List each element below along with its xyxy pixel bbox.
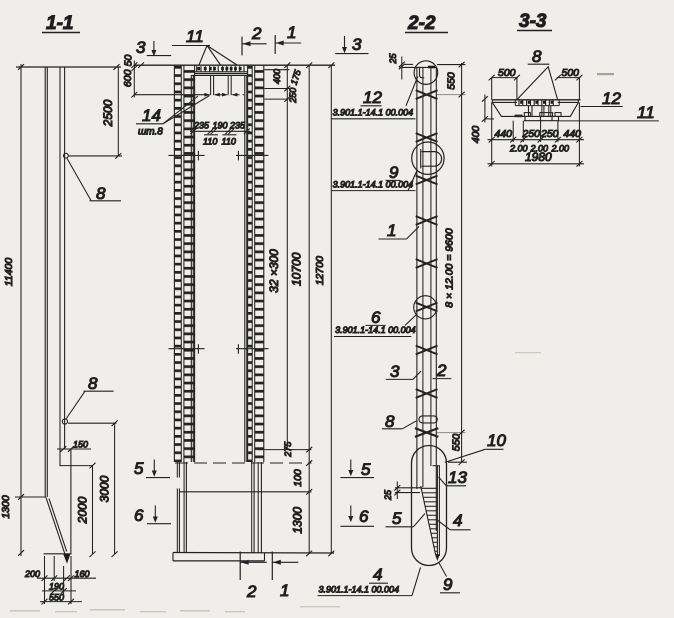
svg-text:6: 6 [134,506,144,525]
svg-text:1: 1 [280,581,289,600]
svg-text:110: 110 [222,137,236,147]
svg-text:3: 3 [390,362,400,381]
svg-text:32 ×300: 32 ×300 [267,249,281,293]
svg-text:190: 190 [49,582,64,592]
svg-text:250: 250 [540,128,559,140]
svg-text:2: 2 [251,24,262,43]
svg-text:160: 160 [75,569,90,579]
svg-text:400: 400 [470,126,482,144]
svg-text:8 × 12.00 = 9600: 8 × 12.00 = 9600 [444,228,456,308]
svg-text:12: 12 [363,88,382,107]
svg-text:25: 25 [388,53,398,65]
svg-text:шт.8: шт.8 [138,127,163,138]
svg-text:12: 12 [602,89,621,108]
svg-text:8: 8 [532,47,542,66]
svg-text:4: 4 [453,511,462,530]
svg-text:3.901.1-14.1 00.004: 3.901.1-14.1 00.004 [333,179,414,189]
svg-text:235: 235 [193,121,210,131]
svg-text:11: 11 [637,103,655,122]
svg-text:550: 550 [49,592,64,602]
svg-text:14: 14 [142,106,161,125]
svg-text:5: 5 [134,459,144,478]
svg-text:190: 190 [213,121,228,131]
svg-text:9: 9 [443,575,453,594]
svg-text:2: 2 [436,361,447,380]
svg-text:100: 100 [292,469,304,487]
svg-text:50: 50 [123,55,135,67]
svg-text:8: 8 [385,412,395,431]
svg-text:10: 10 [487,431,506,450]
svg-text:2500: 2500 [101,99,115,127]
svg-text:3: 3 [352,35,362,54]
svg-text:10700: 10700 [290,252,304,286]
svg-text:12700: 12700 [314,256,326,285]
svg-text:6: 6 [371,308,381,327]
svg-text:2000: 2000 [76,496,90,524]
svg-text:2.00: 2.00 [551,144,570,154]
svg-text:500: 500 [498,67,516,79]
svg-text:235: 235 [229,121,246,131]
svg-text:2-2: 2-2 [407,13,436,34]
svg-text:5: 5 [361,460,371,479]
svg-text:13: 13 [448,468,467,487]
svg-text:1300: 1300 [0,495,12,519]
svg-text:25: 25 [383,489,393,501]
svg-text:550: 550 [451,434,463,452]
svg-text:250: 250 [288,88,298,104]
svg-text:3000: 3000 [98,475,112,502]
svg-text:3-3: 3-3 [519,11,547,32]
svg-text:3.901.1-14.1 00.004: 3.901.1-14.1 00.004 [319,584,400,594]
svg-text:6: 6 [359,507,369,526]
svg-text:3.901.1-14.1 00.004: 3.901.1-14.1 00.004 [335,325,416,335]
svg-text:8: 8 [96,184,106,203]
svg-text:1-1: 1-1 [46,13,73,34]
svg-text:1: 1 [387,221,396,240]
svg-text:440: 440 [495,128,513,140]
svg-text:1300: 1300 [291,507,305,534]
svg-text:8: 8 [88,374,98,393]
svg-text:3.901.1-14.1 00.004: 3.901.1-14.1 00.004 [333,108,414,118]
svg-text:2: 2 [246,582,257,601]
svg-text:150: 150 [73,440,88,450]
svg-text:11: 11 [186,27,204,46]
svg-text:200: 200 [24,569,40,579]
svg-text:11400: 11400 [3,258,15,287]
svg-text:600: 600 [122,69,134,87]
svg-text:400: 400 [272,69,282,84]
svg-text:550: 550 [446,72,458,90]
svg-text:440: 440 [564,128,582,140]
svg-text:5: 5 [392,509,402,528]
svg-text:3: 3 [136,38,146,57]
svg-text:4: 4 [373,565,382,584]
svg-text:250: 250 [522,128,541,140]
svg-text:1980: 1980 [525,150,552,164]
svg-text:110: 110 [203,137,217,147]
svg-text:1: 1 [287,23,296,42]
svg-text:500: 500 [562,67,580,79]
